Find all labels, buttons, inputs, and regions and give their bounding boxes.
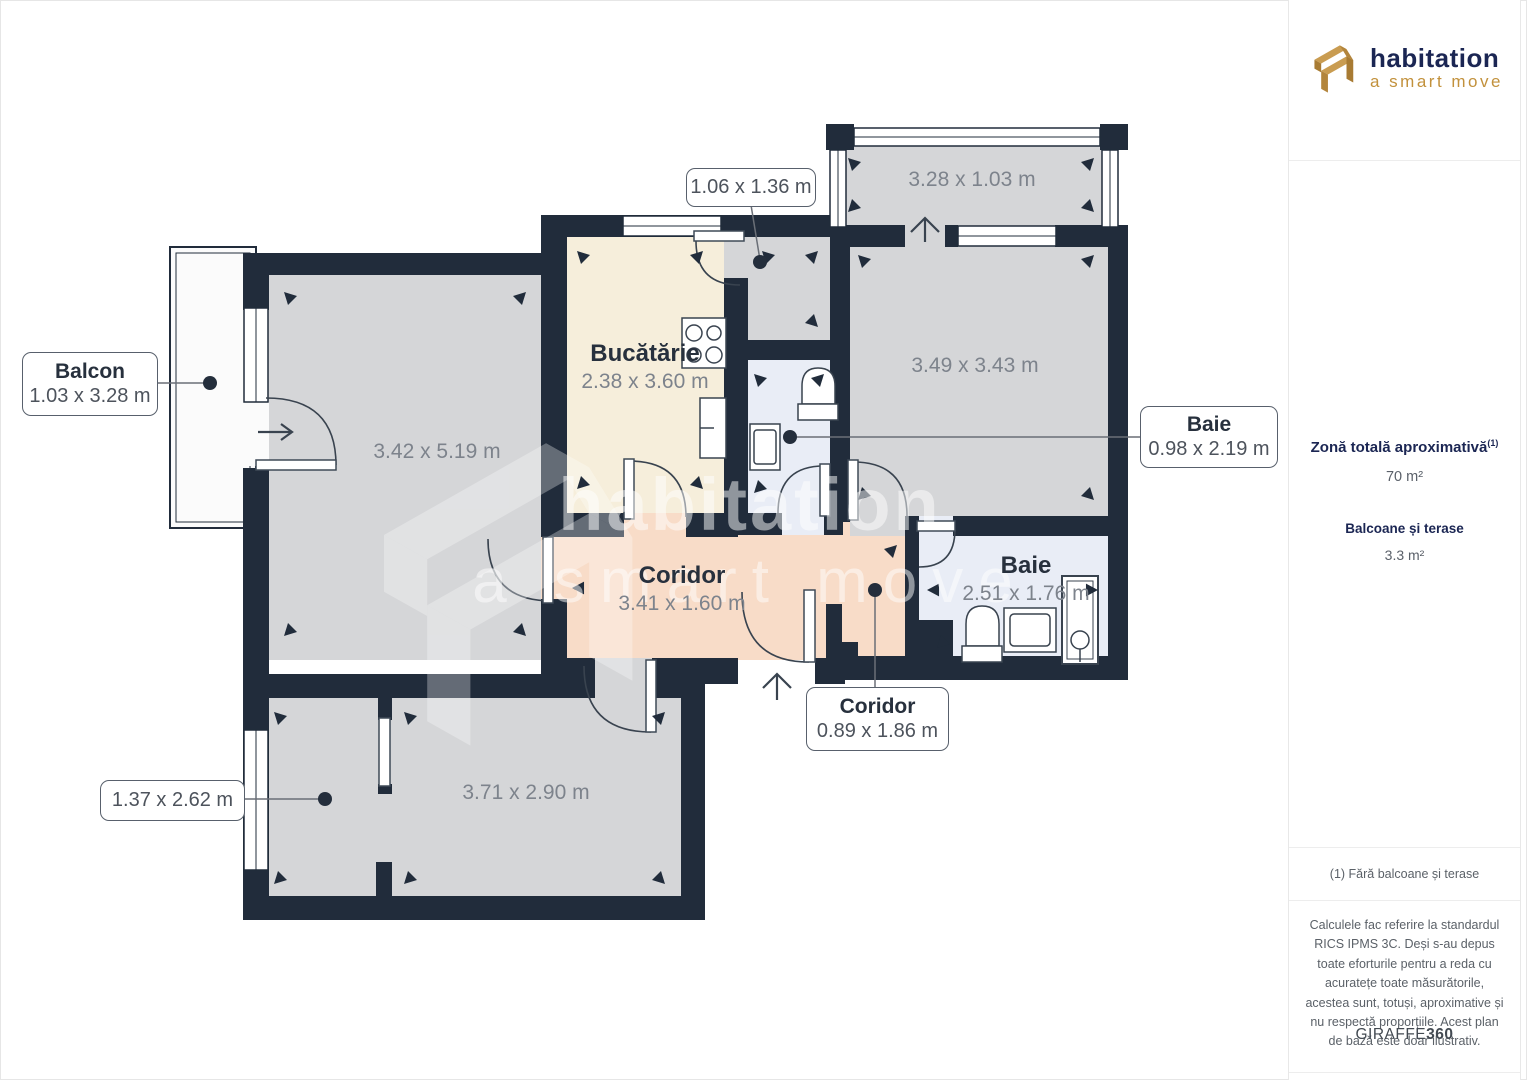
toilet-icon	[966, 606, 999, 646]
total-area-value: 70 m²	[1289, 469, 1520, 485]
brand-name: habitation	[1370, 45, 1503, 72]
sidebar-divider	[1289, 1072, 1520, 1073]
callout-bottom-left: 1.37 x 2.62 m	[100, 780, 245, 821]
floorplan-page: habitation a smart move 3.42 x 5.19 m Bu…	[0, 0, 1527, 1080]
brand-logo: habitation a smart move	[1289, 38, 1520, 100]
balcony-top-floor	[836, 136, 1118, 232]
balcony-area-label: Balcoane și terase	[1289, 521, 1520, 536]
callout-coridor: Coridor 0.89 x 1.86 m	[806, 687, 949, 751]
brand-tagline: a smart move	[1370, 72, 1503, 92]
callout-balcon: Balcon 1.03 x 3.28 m	[22, 352, 158, 416]
sidebar-divider	[1289, 160, 1520, 161]
balcony-area-value: 3.3 m²	[1289, 547, 1520, 563]
sidebar-divider	[1289, 900, 1520, 901]
area-footnote: (1) Fără balcoane și terase	[1289, 847, 1520, 900]
habitation-logo-icon	[1306, 38, 1360, 100]
provider-logo: GIRAFFE360	[1289, 1026, 1520, 1044]
area-summary: Zonă totală aproximativă(1) 70 m² Balcoa…	[1289, 438, 1520, 563]
floorplan-canvas: habitation a smart move 3.42 x 5.19 m Bu…	[0, 0, 1288, 1080]
callout-vestibule: 1.06 x 1.36 m	[686, 168, 816, 207]
total-area-label: Zonă totală aproximativă(1)	[1289, 438, 1520, 456]
info-sidebar: habitation a smart move Zonă totală apro…	[1288, 0, 1521, 1080]
toilet-icon	[802, 368, 835, 404]
floorplan-drawing	[0, 0, 1288, 1080]
callout-baie: Baie 0.98 x 2.19 m	[1140, 406, 1278, 468]
right-room-floor	[840, 237, 1120, 522]
